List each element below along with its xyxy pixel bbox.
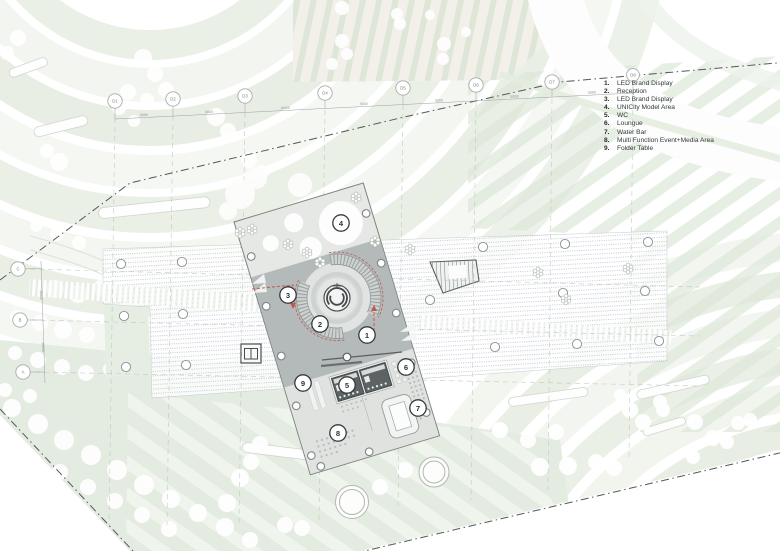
grid-bubble-A: A xyxy=(16,365,30,379)
legend-label: LED Brand Display xyxy=(617,96,673,104)
dimension-label: 5000 xyxy=(588,90,596,94)
grid-bubble-D4: D4 xyxy=(318,86,332,100)
dimension-label: 15000 xyxy=(41,342,45,352)
grid-bubble-D7: D7 xyxy=(545,75,559,89)
site-plan-canvas: 1 2 3 4 5 6 7 8 9 D1 D2 D3 D4 D5 D6 D7 D… xyxy=(0,0,780,551)
legend-label: Reception xyxy=(617,88,647,96)
legend-item-8: 8.Multi Function Event+Media Area xyxy=(604,137,780,145)
legend-label: WC xyxy=(617,112,628,120)
grid-bubble-label: D1 xyxy=(112,99,118,104)
legend-item-3: 3.LED Brand Display xyxy=(604,96,780,104)
plan-badge-8: 8 xyxy=(330,425,346,441)
grid-bubble-label: D2 xyxy=(170,97,176,102)
grid-bubble-label: D6 xyxy=(473,83,479,88)
plan-badge-1: 1 xyxy=(359,327,375,343)
dimension-label: 5000 xyxy=(435,98,443,102)
legend-label: Folder Table xyxy=(617,145,653,153)
legend-label: Multi Function Event+Media Area xyxy=(617,137,714,145)
badge-label: 3 xyxy=(286,291,290,300)
grid-bubble-label: D7 xyxy=(549,80,555,85)
grid-bubble-label: D8 xyxy=(630,73,636,78)
grid-bubble-D6: D6 xyxy=(469,78,483,92)
legend-label: UNICity Model Area xyxy=(617,104,675,112)
legend-item-5: 5.WC xyxy=(604,112,780,120)
plan-badge-6: 6 xyxy=(398,359,414,375)
grid-bubble-label: C xyxy=(16,267,19,272)
plan-badge-5: 5 xyxy=(339,377,355,393)
legend-item-4: 4.UNICity Model Area xyxy=(604,104,780,112)
grid-bubble-C: C xyxy=(11,262,25,276)
badge-label: 6 xyxy=(404,363,408,372)
plan-badge-7: 7 xyxy=(410,400,426,416)
legend-item-7: 7.Water Bar xyxy=(604,129,780,137)
legend-number: 9. xyxy=(604,145,617,153)
legend-number: 2. xyxy=(604,88,617,96)
legend-label: Water Bar xyxy=(617,129,646,137)
dimension-label: 10000 xyxy=(509,94,519,98)
legend-label: LED Brand Display xyxy=(617,80,673,88)
dimension-label: 5000 xyxy=(360,102,368,106)
grid-bubble-D5: D5 xyxy=(396,81,410,95)
legend-number: 4. xyxy=(604,104,617,112)
legend-label: Loungue xyxy=(617,120,643,128)
legend-number: 8. xyxy=(604,137,617,145)
legend-item-2: 2.Reception xyxy=(604,88,780,96)
grid-bubble-D2: D2 xyxy=(166,92,180,106)
plan-badge-2: 2 xyxy=(312,316,328,332)
plan-badge-3: 3 xyxy=(280,287,296,303)
legend-number: 7. xyxy=(604,129,617,137)
badge-label: 2 xyxy=(318,320,322,329)
legend-item-6: 6.Loungue xyxy=(604,120,780,128)
dimension-label: 6000 xyxy=(205,110,213,114)
legend-number: 3. xyxy=(604,96,617,104)
grid-bubble-D1: D1 xyxy=(108,94,122,108)
badge-label: 8 xyxy=(336,429,340,438)
grid-bubble-label: D5 xyxy=(400,86,406,91)
grid-bubble-B: B xyxy=(13,313,27,327)
grid-bubble-D3: D3 xyxy=(238,89,252,103)
legend-number: 5. xyxy=(604,112,617,120)
legend-item-9: 9.Folder Table xyxy=(604,145,780,153)
legend-number: 1. xyxy=(604,80,617,88)
grid-bubble-label: A xyxy=(22,370,25,375)
grid-bubble-label: D3 xyxy=(242,94,248,99)
badge-label: 9 xyxy=(301,379,305,388)
dimension-label: 10000 xyxy=(280,106,290,110)
legend-number: 6. xyxy=(604,120,617,128)
legend: 1.LED Brand Display 2.Reception 3.LED Br… xyxy=(604,80,780,153)
legend-item-1: 1.LED Brand Display xyxy=(604,80,780,88)
grid-bubble-label: B xyxy=(19,318,22,323)
plan-badge-9: 9 xyxy=(295,375,311,391)
badge-label: 7 xyxy=(416,404,420,413)
dimension-label: 5000 xyxy=(140,113,148,117)
plan-badge-4: 4 xyxy=(333,215,349,231)
entry-structure xyxy=(241,344,261,363)
dimension-label: 15000 xyxy=(39,290,43,300)
grid-bubble-label: D4 xyxy=(322,91,328,96)
